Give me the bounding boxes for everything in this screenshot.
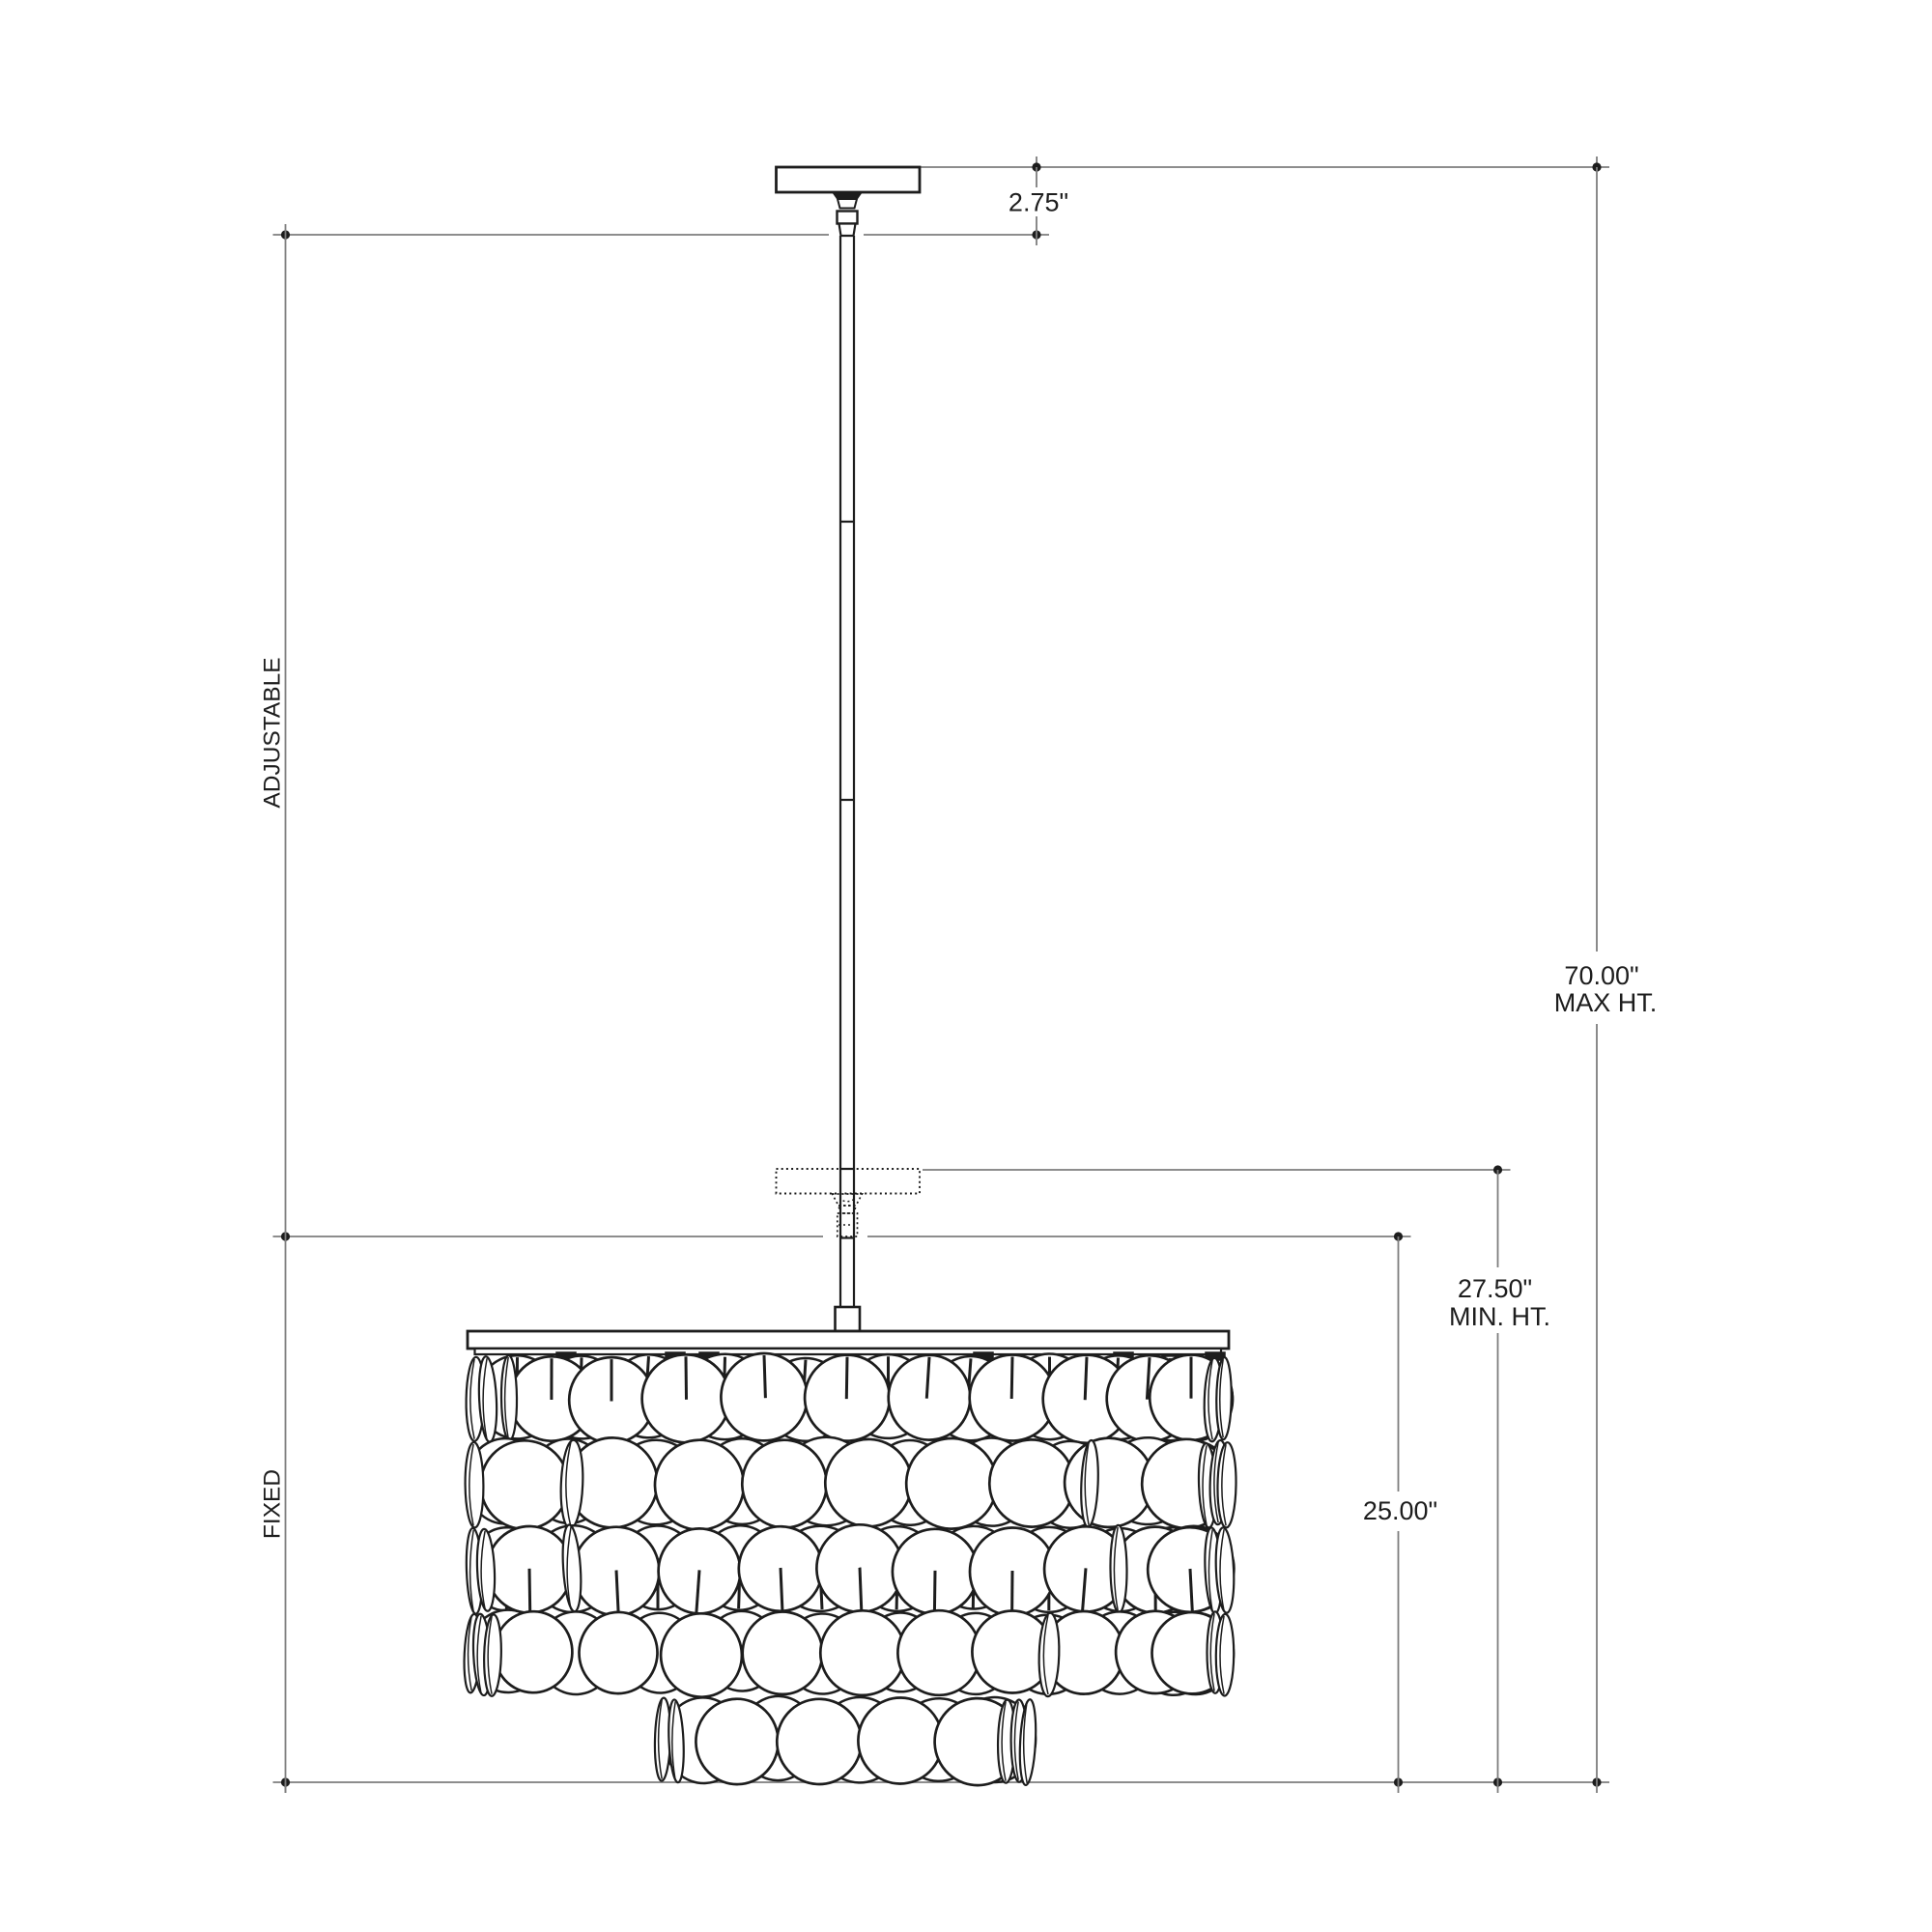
svg-text:70.00": 70.00" xyxy=(1564,961,1638,990)
svg-text:2.75": 2.75" xyxy=(1009,188,1068,217)
svg-text:FIXED: FIXED xyxy=(260,1469,286,1539)
svg-text:ADJUSTABLE: ADJUSTABLE xyxy=(260,657,286,808)
svg-text:MIN. HT.: MIN. HT. xyxy=(1449,1302,1550,1331)
svg-text:MAX HT.: MAX HT. xyxy=(1554,988,1658,1017)
svg-text:25.00": 25.00" xyxy=(1363,1496,1437,1525)
svg-text:27.50": 27.50" xyxy=(1458,1274,1532,1303)
